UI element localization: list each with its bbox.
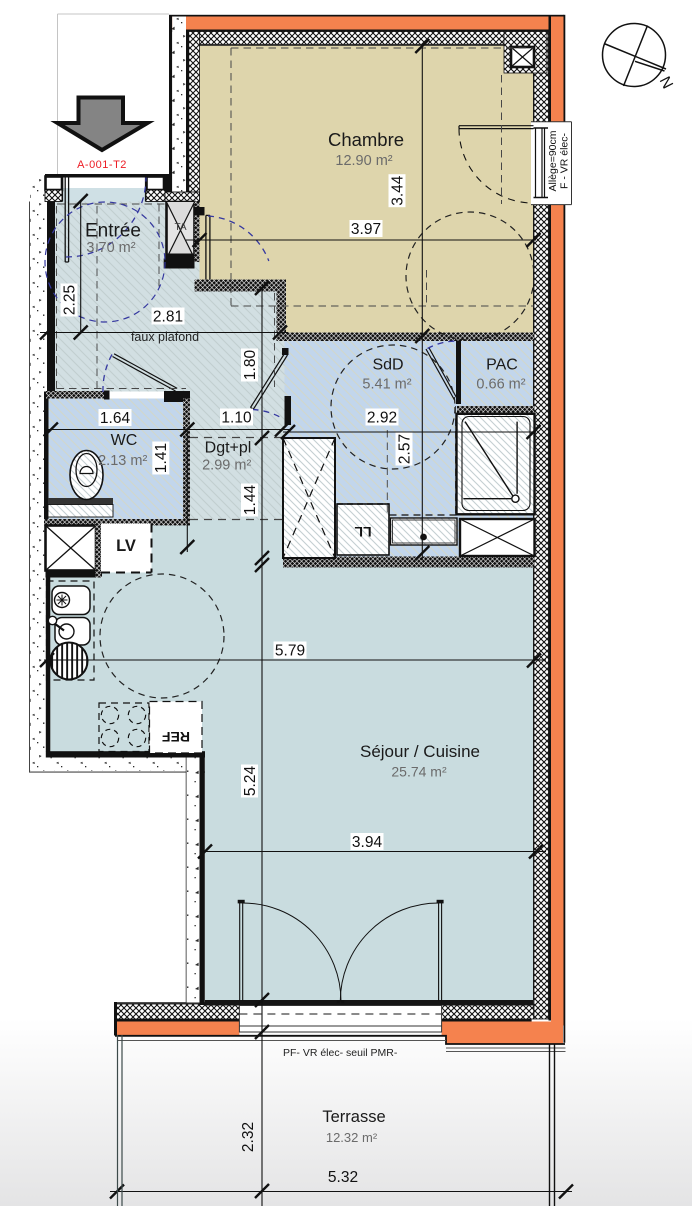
svg-text:25.74 m²: 25.74 m² [391, 764, 447, 780]
svg-text:2.13 m²: 2.13 m² [98, 453, 147, 469]
svg-text:Séjour / Cuisine: Séjour / Cuisine [360, 742, 480, 761]
svg-text:WC: WC [111, 432, 138, 449]
svg-text:LV: LV [116, 537, 136, 555]
svg-text:3.70 m²: 3.70 m² [86, 240, 135, 256]
svg-text:2.92: 2.92 [367, 409, 397, 426]
svg-text:2.25: 2.25 [61, 285, 78, 315]
svg-text:2.57: 2.57 [396, 434, 413, 464]
svg-text:0.66 m²: 0.66 m² [476, 377, 525, 393]
svg-text:F - VR élec-: F - VR élec- [559, 132, 571, 189]
svg-text:Chambre: Chambre [328, 129, 404, 150]
svg-text:faux plafond: faux plafond [131, 330, 199, 344]
svg-text:1.41: 1.41 [153, 443, 170, 473]
svg-text:1.80: 1.80 [242, 350, 259, 381]
svg-text:TA: TA [174, 222, 186, 233]
svg-text:SdD: SdD [372, 357, 403, 374]
svg-text:5.79: 5.79 [275, 642, 305, 659]
svg-text:1.44: 1.44 [242, 485, 259, 516]
svg-text:3.97: 3.97 [351, 221, 381, 238]
svg-text:LL: LL [354, 524, 372, 540]
svg-text:PAC: PAC [486, 357, 518, 374]
svg-text:REF: REF [162, 729, 190, 745]
svg-text:5.41 m²: 5.41 m² [362, 377, 411, 393]
svg-text:12.90 m²: 12.90 m² [335, 153, 392, 169]
svg-text:2.81: 2.81 [153, 308, 183, 325]
svg-text:3.44: 3.44 [389, 175, 406, 206]
svg-text:A-001-T2: A-001-T2 [77, 159, 127, 171]
svg-text:Terrasse: Terrasse [322, 1108, 385, 1126]
svg-text:12.32 m²: 12.32 m² [326, 1130, 378, 1145]
svg-text:Dgt+pl: Dgt+pl [205, 440, 252, 457]
svg-text:2.32: 2.32 [240, 1122, 257, 1152]
svg-text:PF- VR élec- seuil PMR-: PF- VR élec- seuil PMR- [283, 1047, 398, 1059]
svg-text:Allège=90cm: Allège=90cm [547, 130, 559, 191]
svg-text:2.99 m²: 2.99 m² [202, 458, 251, 474]
svg-text:5.32: 5.32 [328, 1169, 358, 1186]
svg-text:5.24: 5.24 [242, 766, 259, 797]
svg-text:1.64: 1.64 [100, 410, 131, 427]
svg-text:Entrée: Entrée [85, 221, 141, 242]
svg-text:3.94: 3.94 [352, 834, 383, 851]
svg-text:1.10: 1.10 [221, 409, 252, 426]
